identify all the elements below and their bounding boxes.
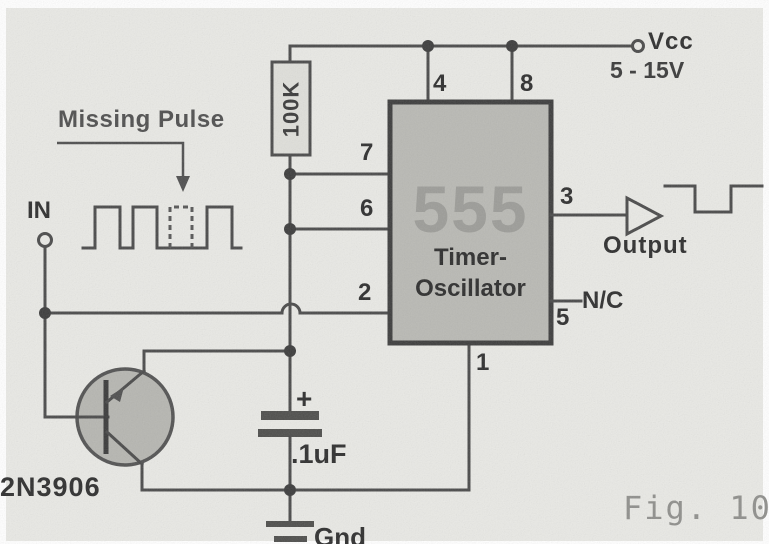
in-terminal-icon [39,234,52,247]
missing-pulse-arrowhead-icon [176,176,190,192]
ground-label: Gnd [314,524,366,544]
resistor-value-text: 100K [278,80,304,137]
wire-vcc-rail [290,46,632,62]
junction-dot [284,345,296,357]
ground-bar-2 [274,536,307,542]
ground-symbol-icon [266,521,314,542]
vcc-rail [290,41,644,103]
junction-dot [39,307,51,319]
pin-label-6: 6 [360,197,373,221]
resistor-value-label: 100K [272,62,310,155]
trigger-wire [50,304,390,313]
output-buffer-icon [627,198,661,234]
pin-label-7: 7 [360,141,373,165]
junction-dot [284,168,296,180]
pin-label-2: 2 [358,281,371,305]
ground-bar-1 [266,521,314,527]
vcc-range-label: 5 - 15V [610,59,684,82]
missing-pulse-label: Missing Pulse [58,108,225,132]
schematic-figure: Missing Pulse IN 2N3906 100K + .1uF Gnd … [0,0,769,544]
junction-dot [284,223,296,235]
junction-dot [506,40,518,52]
chip-name-line2: Oscillator [390,277,551,301]
pin-label-5: 5 [556,306,569,330]
input-terminal-label: IN [27,199,51,223]
pin-label-3: 3 [560,185,573,209]
transistor-symbol [45,351,290,490]
input-waveform [83,207,241,248]
output-waveform [665,186,762,212]
transistor-part-label: 2N3906 [0,474,101,501]
pin-label-8: 8 [520,72,533,96]
junction-dot [422,40,434,52]
vcc-terminal-icon [633,41,644,52]
missing-pulse-waveform [170,207,192,248]
junction-dot [284,484,296,496]
vcc-label: Vcc [648,30,694,54]
figure-caption: Fig. 10a [623,492,769,524]
pin-label-1: 1 [476,351,489,375]
capacitor-value-label: .1uF [291,441,347,468]
missing-pulse-arrow [57,143,190,192]
chip-name-line1: Timer- [390,246,551,270]
capacitor-polarity-label: + [296,385,312,413]
nc-label: N/C [582,289,623,313]
missing-pulse-arrow-line [57,143,183,178]
chip-part-watermark: 555 [390,176,551,242]
pin-label-4: 4 [433,72,446,96]
wire-emitter-to-cap [144,351,290,371]
output-label: Output [603,234,688,258]
